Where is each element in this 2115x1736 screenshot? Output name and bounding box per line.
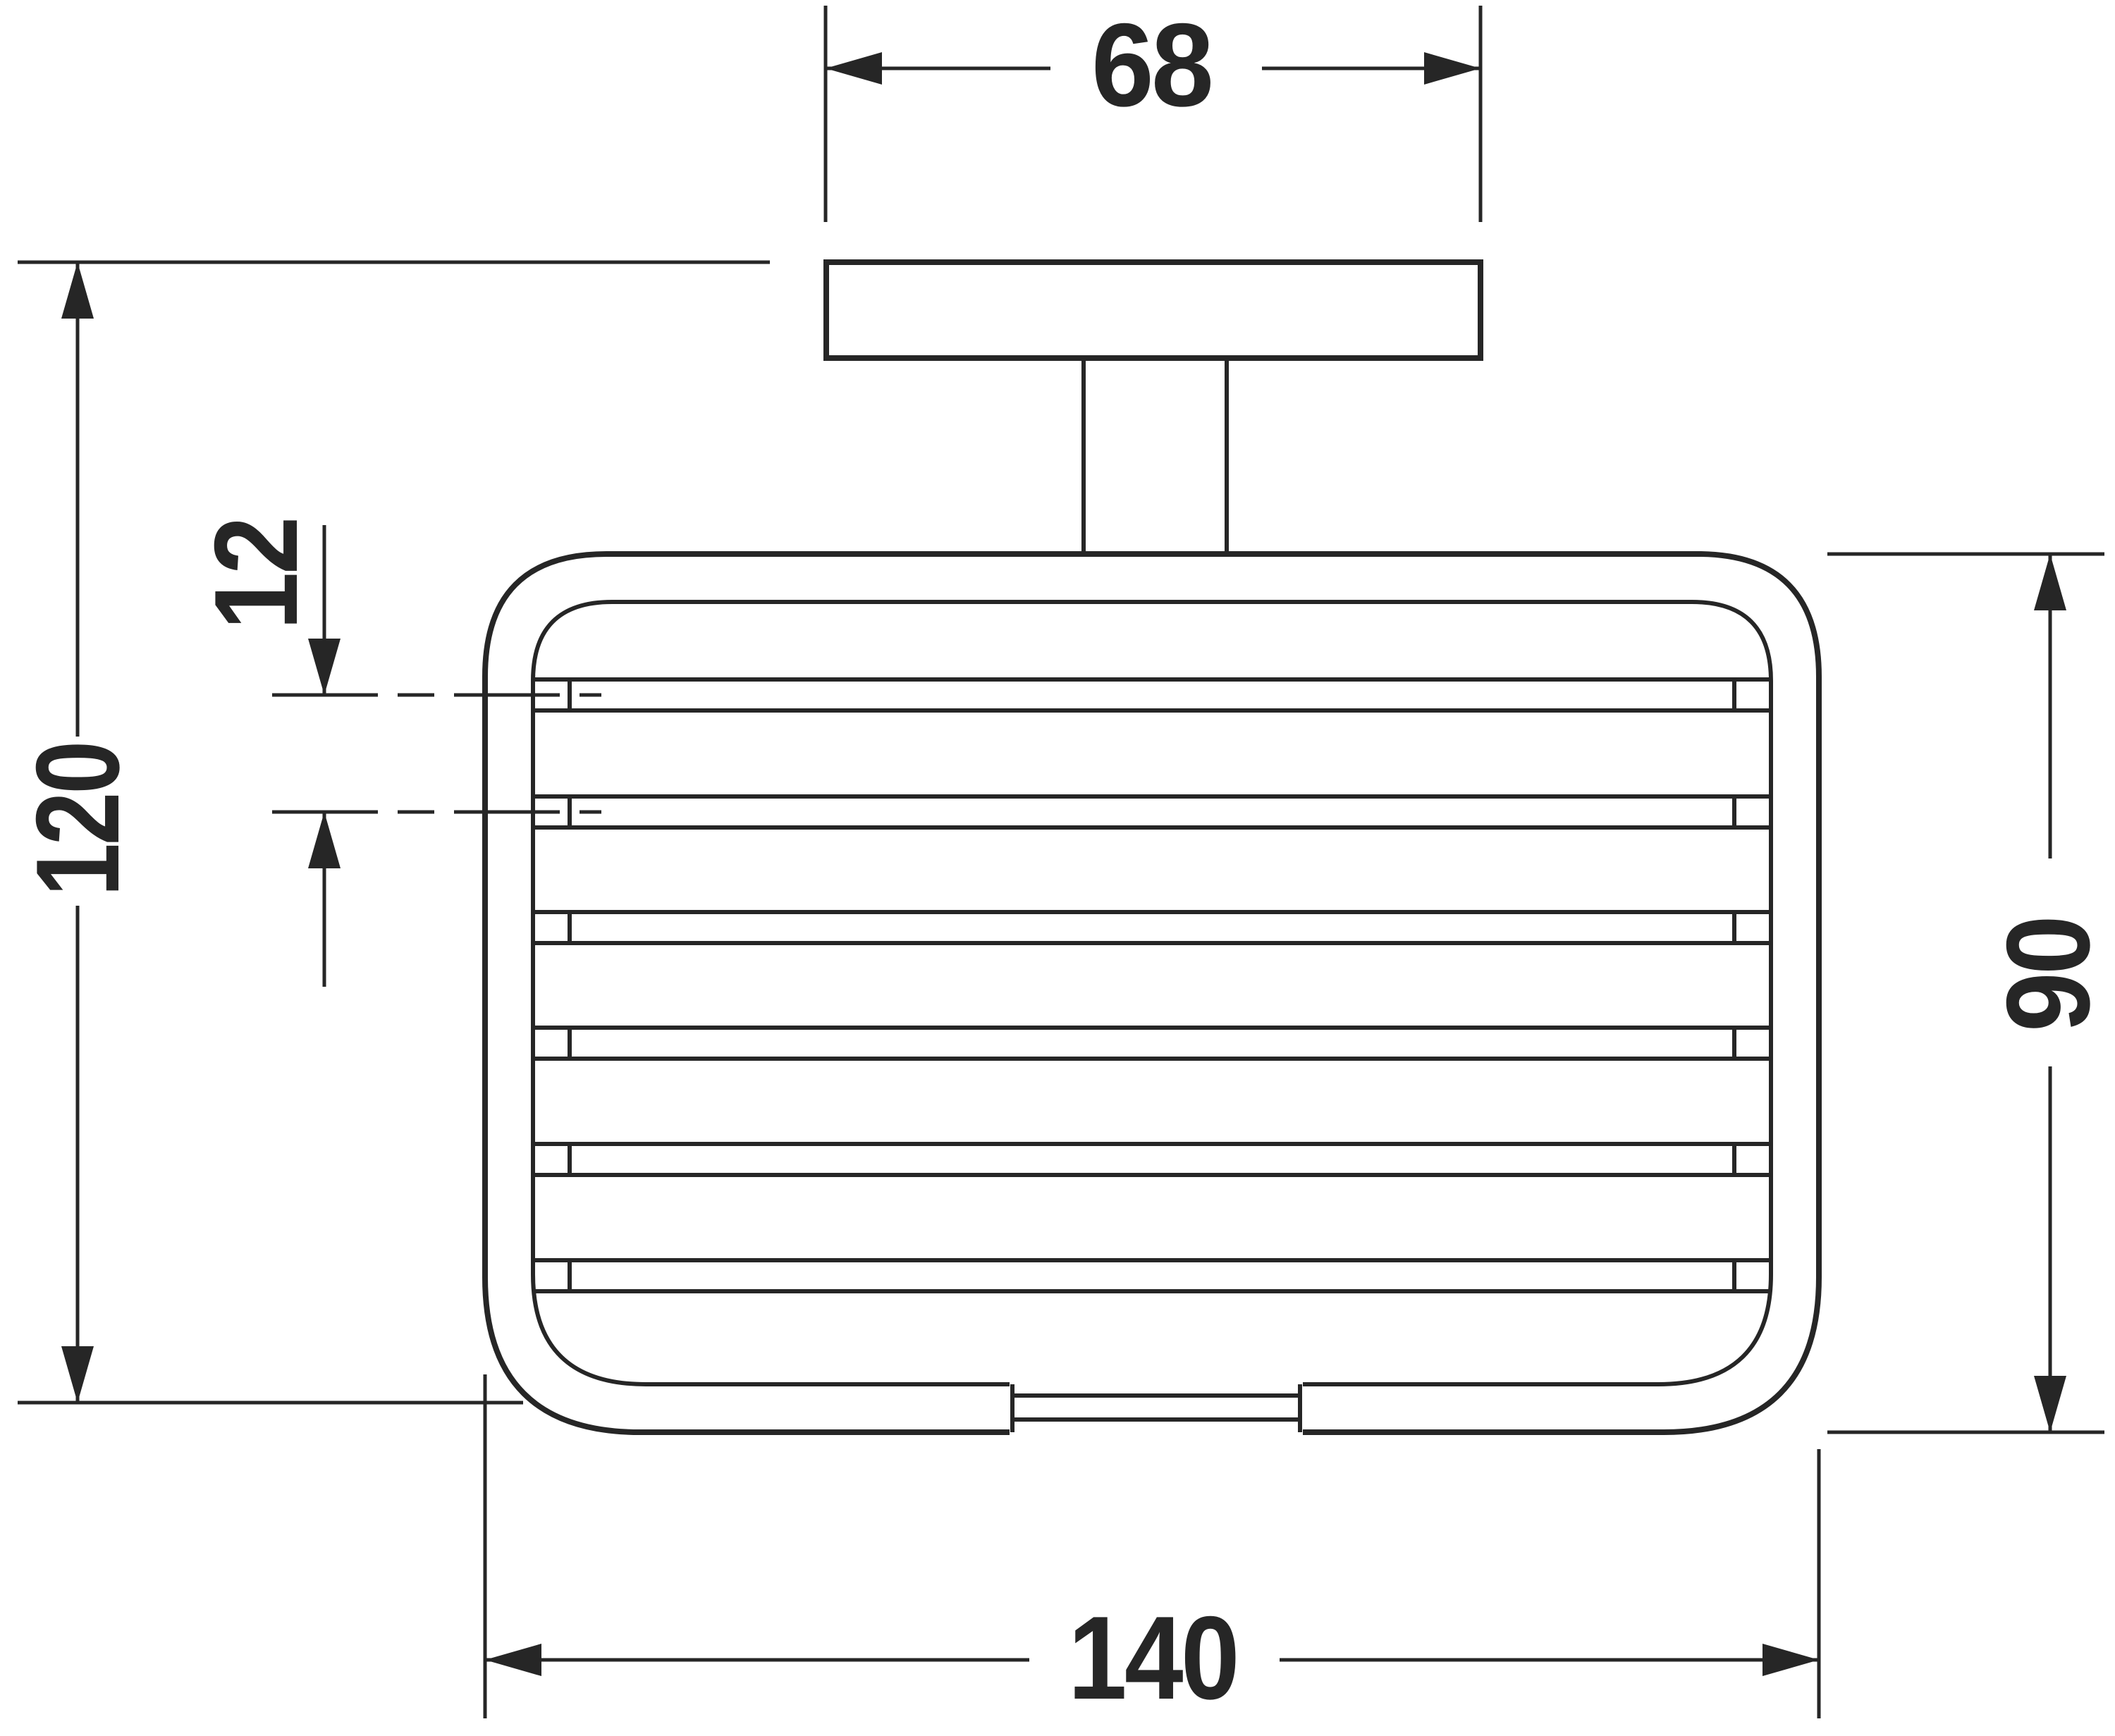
- dimension-overall-height: 120: [11, 262, 770, 1403]
- arrow-right-icon: [1762, 1644, 1819, 1676]
- basket-outer-contour: [485, 554, 1819, 1432]
- basket-outer-frame: [485, 554, 1819, 1432]
- arrow-down-icon: [61, 1346, 94, 1403]
- dimension-label-140: 140: [1068, 1592, 1237, 1724]
- basket-wires: [533, 679, 1771, 1291]
- technical-drawing-sheet: 68 120 12: [0, 0, 2115, 1736]
- arrow-right-icon: [1424, 52, 1480, 85]
- dimension-label-12: 12: [190, 519, 322, 630]
- wire-3: [533, 912, 1771, 943]
- wire-6: [533, 1260, 1771, 1291]
- dimension-basket-height: 90: [1827, 554, 2114, 1432]
- arrow-left-icon: [826, 52, 882, 85]
- dimension-label-90: 90: [1982, 918, 2114, 1032]
- dimension-label-68: 68: [1091, 0, 1211, 131]
- wire-4: [533, 1028, 1771, 1059]
- wire-5: [533, 1144, 1771, 1175]
- basket-inner-frame: [533, 602, 1771, 1384]
- wire-2: [533, 796, 1771, 827]
- bottom-rail-recess: [1010, 1376, 1303, 1441]
- arrow-up-icon: [308, 812, 341, 868]
- arrow-down-icon: [2034, 1376, 2066, 1432]
- arrow-up-icon: [2034, 554, 2066, 610]
- recess-mask: [1010, 1376, 1303, 1441]
- arrow-down-icon: [308, 639, 341, 695]
- dimension-label-120: 120: [11, 743, 144, 897]
- arrow-up-icon: [61, 262, 94, 319]
- wall-mount-plate-outline: [826, 262, 1480, 358]
- wire-1: [533, 679, 1771, 710]
- dimension-plate-width: 68: [826, 0, 1480, 222]
- dimension-wire-spacing: 12: [190, 519, 601, 987]
- mounting-stem: [1084, 358, 1227, 557]
- soap-basket-dimension-drawing: 68 120 12: [0, 0, 2115, 1736]
- basket-inner-contour: [533, 602, 1771, 1384]
- wall-mount-plate: [826, 262, 1480, 358]
- arrow-left-icon: [485, 1644, 541, 1676]
